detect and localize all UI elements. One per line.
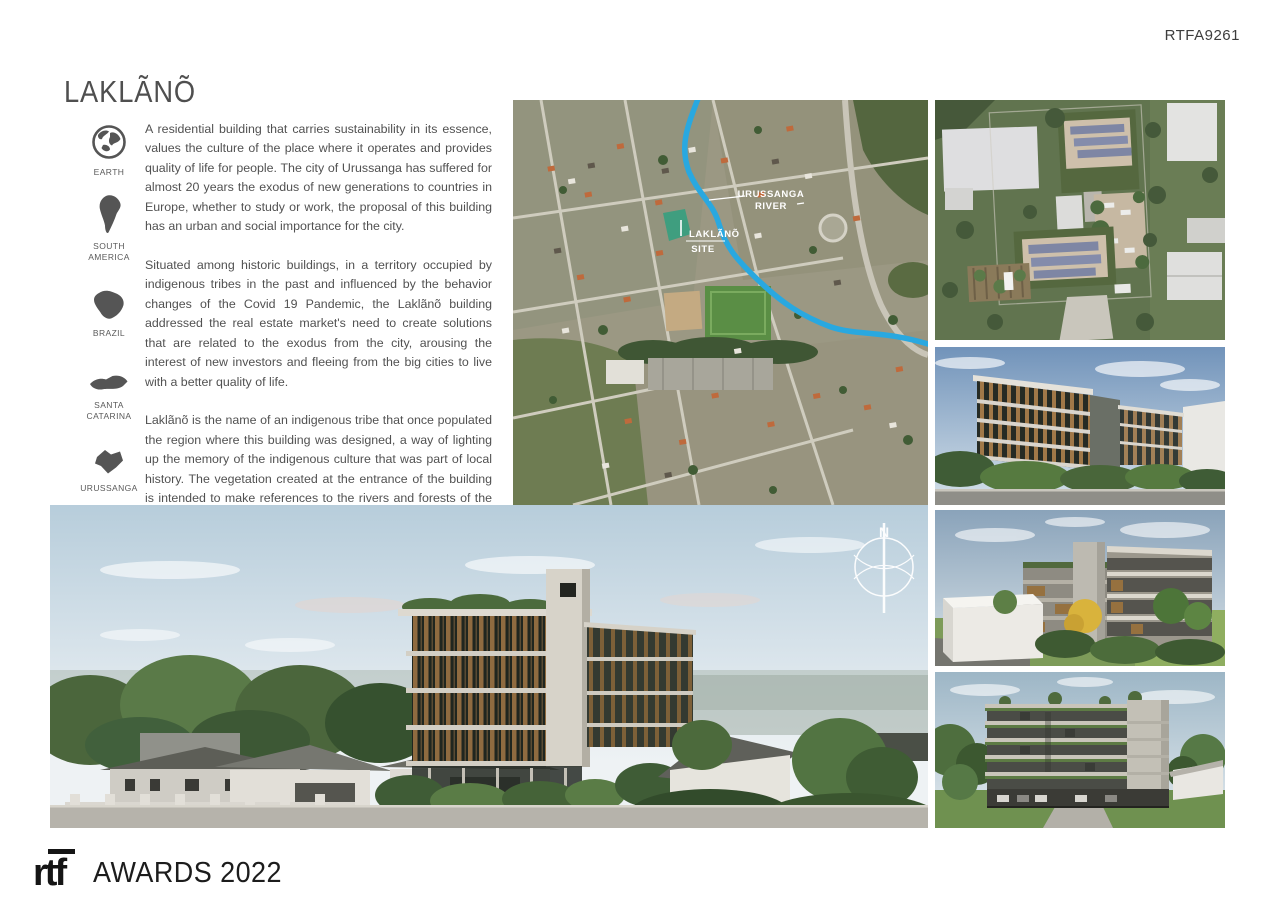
- foreground-warehouse: [943, 594, 1043, 662]
- building-render-rear-facade: [935, 672, 1225, 828]
- location-marker-south-america: SOUTH AMERICA: [76, 194, 142, 263]
- location-marker-urussanga: URUSSANGA: [76, 446, 142, 494]
- building-render-rear-perspective: [935, 510, 1225, 666]
- santa-catarina-map-icon: [88, 371, 130, 395]
- map-roundabout: [820, 215, 846, 241]
- location-marker-santa-catarina: SANTA CATARINA: [76, 371, 142, 422]
- driveway-ramp: [1043, 807, 1113, 828]
- rendered-building: [985, 691, 1169, 828]
- map-sports-field: [705, 286, 771, 340]
- urussanga-map-icon: [91, 446, 127, 478]
- svg-text:RIVER: RIVER: [755, 201, 787, 212]
- location-marker-label: URUSSANGA: [80, 483, 137, 494]
- rtf-awards-logo: rtf AWARDS 2022: [33, 848, 296, 892]
- awards-year-text: AWARDS 2022: [93, 859, 282, 892]
- svg-text:SITE: SITE: [691, 244, 715, 255]
- svg-text:LAKLÃNÕ: LAKLÃNÕ: [689, 229, 740, 240]
- road: [50, 807, 928, 828]
- location-marker-label: SOUTH AMERICA: [76, 241, 142, 263]
- south-america-map-icon: [94, 194, 124, 236]
- earth-globe-icon: [89, 122, 129, 162]
- location-marker-label: SANTA CATARINA: [76, 400, 142, 422]
- submission-ref-code: RTFA9261: [1165, 27, 1240, 44]
- location-marker-brazil: BRAZIL: [76, 287, 142, 339]
- street-panorama-render: N: [50, 505, 928, 828]
- location-marker-label: BRAZIL: [93, 328, 125, 339]
- location-marker-label: EARTH: [94, 167, 125, 178]
- project-title: LAKLÃNÕ: [64, 74, 196, 110]
- map-warehouse: [648, 358, 773, 390]
- description-paragraph-2: Situated among historic buildings, in a …: [145, 256, 492, 392]
- building-render-perspective: [935, 347, 1225, 505]
- presentation-board: RTFA9261 LAKLÃNÕ EARTH SOUTH AMERICA BRA…: [0, 0, 1273, 900]
- road: [935, 491, 1225, 505]
- description-paragraph-1: A residential building that carries sust…: [145, 120, 492, 237]
- rtf-logo-text: rtf: [33, 852, 67, 892]
- rtf-logo-icon: rtf: [33, 848, 83, 892]
- site-plan-render: [935, 100, 1225, 340]
- neighbor-wall: [1183, 401, 1225, 479]
- brazil-map-icon: [90, 287, 128, 323]
- location-marker-earth: EARTH: [76, 122, 142, 178]
- aerial-site-map: URUSSANGA RIVER LAKLÃNÕ SITE: [513, 100, 928, 505]
- compass-north-label: N: [879, 524, 889, 540]
- svg-text:URUSSANGA: URUSSANGA: [738, 189, 805, 200]
